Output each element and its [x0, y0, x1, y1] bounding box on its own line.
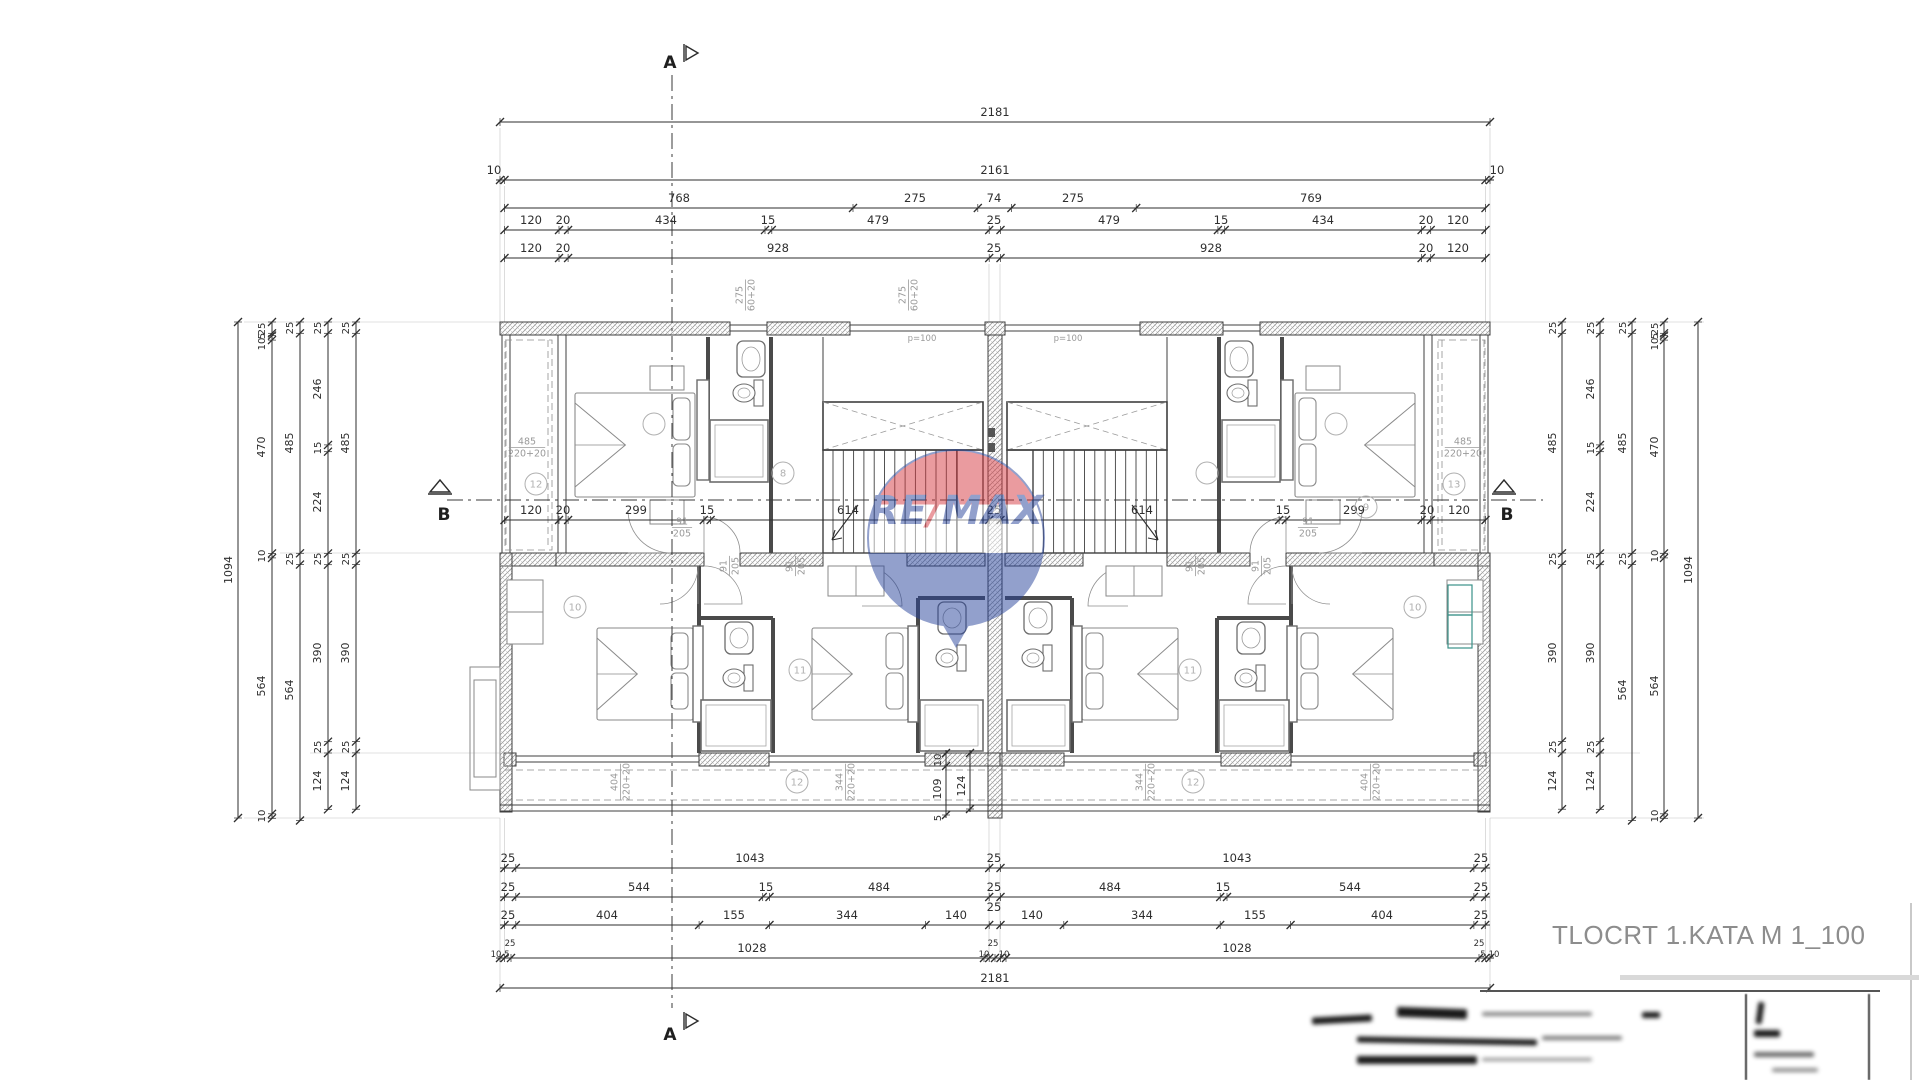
dim-label: 246 [1584, 379, 1597, 400]
dim-label: 470 [1648, 437, 1661, 458]
dim-label: 1028 [1222, 941, 1251, 955]
bed [1295, 393, 1415, 497]
room-number-circle: 12 [786, 771, 808, 793]
dim-label: 390 [1584, 643, 1597, 664]
dim-label: 25 [285, 322, 296, 335]
dim-label: 20 [1419, 213, 1434, 227]
dim-label: 25 [1586, 553, 1597, 566]
dim-label: 10 [257, 810, 268, 823]
dim-label: 120 [520, 241, 542, 255]
dim-label: 124 [955, 776, 968, 797]
toilet-icon [1235, 665, 1265, 691]
dim-label: 140 [1021, 908, 1043, 922]
dim-label: B [438, 505, 451, 525]
dim-label: 20 [1420, 503, 1435, 517]
dim-label: 25 [1586, 322, 1597, 335]
dim-label: 485 [339, 433, 352, 454]
dim-label: 25 [313, 322, 324, 335]
dim-label: 25 [341, 553, 352, 566]
dim-label: 1043 [735, 851, 764, 865]
dim-label: 10 [487, 163, 502, 177]
dim-label: 25 [987, 851, 1002, 865]
dim-label: A [663, 53, 677, 73]
remax-watermark-logo: RE/MAX [868, 450, 1045, 648]
dim-label: 120 [1447, 213, 1469, 227]
dim-label: 479 [867, 213, 889, 227]
dim-label: 544 [1339, 880, 1361, 894]
room-number-circle: 12 [525, 473, 547, 495]
bed [1082, 628, 1178, 720]
room-number-circle: 12 [1182, 771, 1204, 793]
dim-label: 15 [1586, 442, 1597, 455]
room-number-circle: 11 [789, 659, 811, 681]
dim-label: 344 [836, 908, 858, 922]
dim-label: 564 [283, 680, 296, 701]
dim-label: 25 [501, 851, 516, 865]
room-number-circle: 10 [1404, 596, 1426, 618]
dim-label: 470 [255, 437, 268, 458]
dim-label: 60+20 [910, 279, 921, 311]
dim-label: 485 [518, 437, 536, 448]
dim-label: 299 [1343, 503, 1365, 517]
dim-label: 25 [1474, 939, 1485, 949]
opening-size-label: 485220+20 [508, 437, 546, 460]
dim-label: 20 [556, 503, 571, 517]
dim-label: 25 [313, 741, 324, 754]
stamp-divider [1868, 994, 1870, 1080]
dim-label: 124 [1546, 771, 1559, 792]
dim-label: 25 [341, 741, 352, 754]
section-marker-b: B [1492, 480, 1516, 525]
opening-size-label: 344220+20 [1135, 763, 1158, 801]
drawing-title: TLOCRT 1.KATA M 1_100 [1552, 920, 1882, 951]
dim-label: 5 [1480, 950, 1485, 960]
room-number-circle: 11 [1179, 659, 1201, 681]
dim-label: 13 [1448, 480, 1461, 491]
dim-label: 275 [1062, 191, 1084, 205]
dim-label: 614 [837, 503, 859, 517]
dim-label: 404 [610, 773, 621, 791]
dim-label: p=100 [908, 334, 937, 344]
dim-label: 220+20 [1147, 763, 1158, 801]
dim-label: 484 [1099, 880, 1121, 894]
dim-label: B [1501, 505, 1514, 525]
dim-label: 564 [255, 676, 268, 697]
floorplan-page: { "title": "TLOCRT 1.KATA M 1_100", "wat… [0, 0, 1919, 1080]
watermark-text: RE/MAX [869, 488, 1045, 534]
opening-size-label: 485220+20 [1444, 437, 1482, 460]
dim-label: 5 [933, 815, 944, 821]
dim-label: 25 [1474, 851, 1489, 865]
dim-label: 11 [794, 666, 807, 677]
dim-label: 564 [1616, 680, 1629, 701]
opening-size-label: 91205 [719, 556, 742, 576]
dim-label: 564 [1648, 676, 1661, 697]
dim-label: 25 [1474, 908, 1489, 922]
opening-size-label: 404220+20 [1360, 763, 1383, 801]
dim-label: 10 [1650, 550, 1661, 563]
dim-label: 434 [655, 213, 677, 227]
dim-label: 768 [668, 191, 690, 205]
dim-label: 390 [311, 643, 324, 664]
dim-label: 25 [987, 213, 1002, 227]
dim-label: 12 [1187, 778, 1200, 789]
dim-label: 20 [556, 241, 571, 255]
dim-label: 12 [530, 480, 543, 491]
dim-label: 205 [731, 557, 742, 575]
dim-label: 20 [556, 213, 571, 227]
toilet-icon [936, 645, 966, 671]
scanned-stamp-block [1302, 990, 1919, 1080]
dim-label: 12 [791, 778, 804, 789]
dim-label: 11 [1184, 666, 1197, 677]
dim-label: 10 [569, 603, 582, 614]
opening-size-label: 404220+20 [610, 763, 633, 801]
floorplan-drawing: 2181102161107682757427576912020434154792… [0, 0, 1919, 1080]
dim-label: 25 [501, 880, 516, 894]
dim-label: 25 [341, 322, 352, 335]
dim-label: 25 [987, 880, 1002, 894]
dim-label: 220+20 [847, 763, 858, 801]
room-number-circle: 8 [772, 462, 794, 484]
dim-label: 1028 [737, 941, 766, 955]
dim-label: p=100 [1054, 334, 1083, 344]
dim-label: 275 [735, 286, 746, 304]
dim-label: 25 [501, 908, 516, 922]
opening-size-label: 27560+20 [898, 279, 921, 311]
section-marker-b: B [428, 480, 452, 525]
bed [812, 628, 908, 720]
opening-size-label: 91205 [1251, 556, 1274, 576]
dim-label: 91 [719, 560, 730, 572]
scan-edge-artifact [1910, 903, 1912, 1080]
dim-label: 15 [313, 442, 324, 455]
dim-label: 25 [505, 939, 516, 949]
dim-label: 1094 [222, 556, 235, 584]
toilet-icon [1022, 645, 1052, 671]
dim-label: 140 [945, 908, 967, 922]
dim-label: 485 [1616, 433, 1629, 454]
dim-label: 10 [933, 754, 944, 767]
dim-label: 485 [1454, 437, 1472, 448]
dim-label: A [663, 1025, 677, 1045]
dim-label: 25 [1586, 741, 1597, 754]
dim-label: 10 [1489, 950, 1500, 960]
dim-label: 5 [504, 950, 509, 960]
dim-label: 124 [311, 771, 324, 792]
dim-label: 120 [1447, 241, 1469, 255]
dim-label: 25 [988, 939, 999, 949]
dim-label: 124 [339, 771, 352, 792]
dim-label: 9 [1363, 503, 1369, 514]
dim-label: 25 [987, 900, 1002, 914]
dim-label: 614 [1131, 503, 1153, 517]
dim-label: 2181 [980, 105, 1009, 119]
dim-label: 15 [1216, 880, 1231, 894]
dim-label: 275 [904, 191, 926, 205]
dim-label: 10 [257, 550, 268, 563]
dim-label: 155 [1244, 908, 1266, 922]
stamp-divider [1745, 994, 1747, 1080]
dim-label: 15 [759, 880, 774, 894]
opening-size-label: 344220+20 [835, 763, 858, 801]
dim-label: 25 [1618, 322, 1629, 335]
section-marker-a: A [663, 44, 698, 73]
dim-label: 25 [313, 553, 324, 566]
dim-label: 220+20 [508, 449, 546, 460]
dim-label: 10 [1490, 163, 1505, 177]
room-number-circle: 13 [1443, 473, 1465, 495]
dim-label: 25 [987, 241, 1002, 255]
toilet-icon [723, 665, 753, 691]
dim-label: 91 [1185, 560, 1196, 572]
dim-label: 205 [1263, 557, 1274, 575]
dim-label: 10 [1650, 810, 1661, 823]
dim-label: 20 [1419, 241, 1434, 255]
bed [597, 628, 693, 720]
dim-label: 2181 [980, 971, 1009, 985]
dim-label: 485 [1546, 433, 1559, 454]
dim-label: 275 [898, 286, 909, 304]
dim-label: 8 [780, 469, 786, 480]
dim-label: 404 [596, 908, 618, 922]
dim-label: 10 [1650, 338, 1661, 351]
dim-label: 434 [1312, 213, 1334, 227]
dim-label: 485 [283, 433, 296, 454]
room-number-circle: 10 [564, 596, 586, 618]
dim-label: 344 [1131, 908, 1153, 922]
stamp-frame [1480, 990, 1880, 1080]
dim-label: 404 [1371, 908, 1393, 922]
dim-label: 224 [311, 492, 324, 513]
scan-line-artifact [1620, 975, 1919, 980]
dim-label: 124 [1584, 771, 1597, 792]
dim-label: 91 [785, 560, 796, 572]
dim-label: 120 [1448, 503, 1470, 517]
dim-label: 25 [1474, 880, 1489, 894]
dim-label: 220+20 [1444, 449, 1482, 460]
dim-label: 390 [339, 643, 352, 664]
dim-label: 10 [999, 950, 1010, 960]
dim-label: 109 [931, 779, 944, 800]
dim-label: 91 [1251, 560, 1262, 572]
dim-label: 15 [700, 503, 715, 517]
dim-label: 25 [1548, 741, 1559, 754]
dim-label: 10 [491, 950, 502, 960]
bed [575, 393, 695, 497]
room-number-circle [1196, 462, 1218, 484]
dim-label: 2161 [980, 163, 1009, 177]
dim-label: 484 [868, 880, 890, 894]
dim-label: 155 [723, 908, 745, 922]
opening-size-label: 27560+20 [735, 279, 758, 311]
dim-label: 91 [1302, 517, 1314, 528]
dim-label: 246 [311, 379, 324, 400]
dim-label: 404 [1360, 773, 1371, 791]
dim-label: 60+20 [747, 279, 758, 311]
dim-label: 928 [767, 241, 789, 255]
dim-label: 120 [520, 503, 542, 517]
dim-label: 344 [835, 773, 846, 791]
dim-label: 10 [257, 338, 268, 351]
section-marker-a: A [663, 1012, 698, 1045]
dim-label: 224 [1584, 492, 1597, 513]
dim-label: 10 [979, 950, 990, 960]
dim-label: 120 [520, 213, 542, 227]
dim-label: 15 [761, 213, 776, 227]
dim-label: 769 [1300, 191, 1322, 205]
toilet-icon [733, 380, 763, 406]
bed [1297, 628, 1393, 720]
dim-label: 25 [285, 553, 296, 566]
dim-label: 1094 [1682, 556, 1695, 584]
dim-label: 544 [628, 880, 650, 894]
dim-label: 479 [1098, 213, 1120, 227]
dim-label: 205 [1299, 529, 1317, 540]
dim-label: 299 [625, 503, 647, 517]
dim-label: 74 [987, 191, 1002, 205]
dim-label: 25 [1548, 553, 1559, 566]
dim-label: 344 [1135, 773, 1146, 791]
dim-label: 15 [1276, 503, 1291, 517]
dim-label: 91 [676, 517, 688, 528]
dim-label: 205 [673, 529, 691, 540]
dim-label: 390 [1546, 643, 1559, 664]
dim-label: 25 [1548, 322, 1559, 335]
dim-label: 220+20 [622, 763, 633, 801]
toilet-icon [1227, 380, 1257, 406]
dim-label: 1043 [1222, 851, 1251, 865]
dim-label: 205 [797, 557, 808, 575]
dim-label: 25 [1618, 553, 1629, 566]
dim-label: 220+20 [1372, 763, 1383, 801]
dim-label: 928 [1200, 241, 1222, 255]
dim-label: 10 [1409, 603, 1422, 614]
dim-label: 15 [1214, 213, 1229, 227]
dim-label: 205 [1197, 557, 1208, 575]
